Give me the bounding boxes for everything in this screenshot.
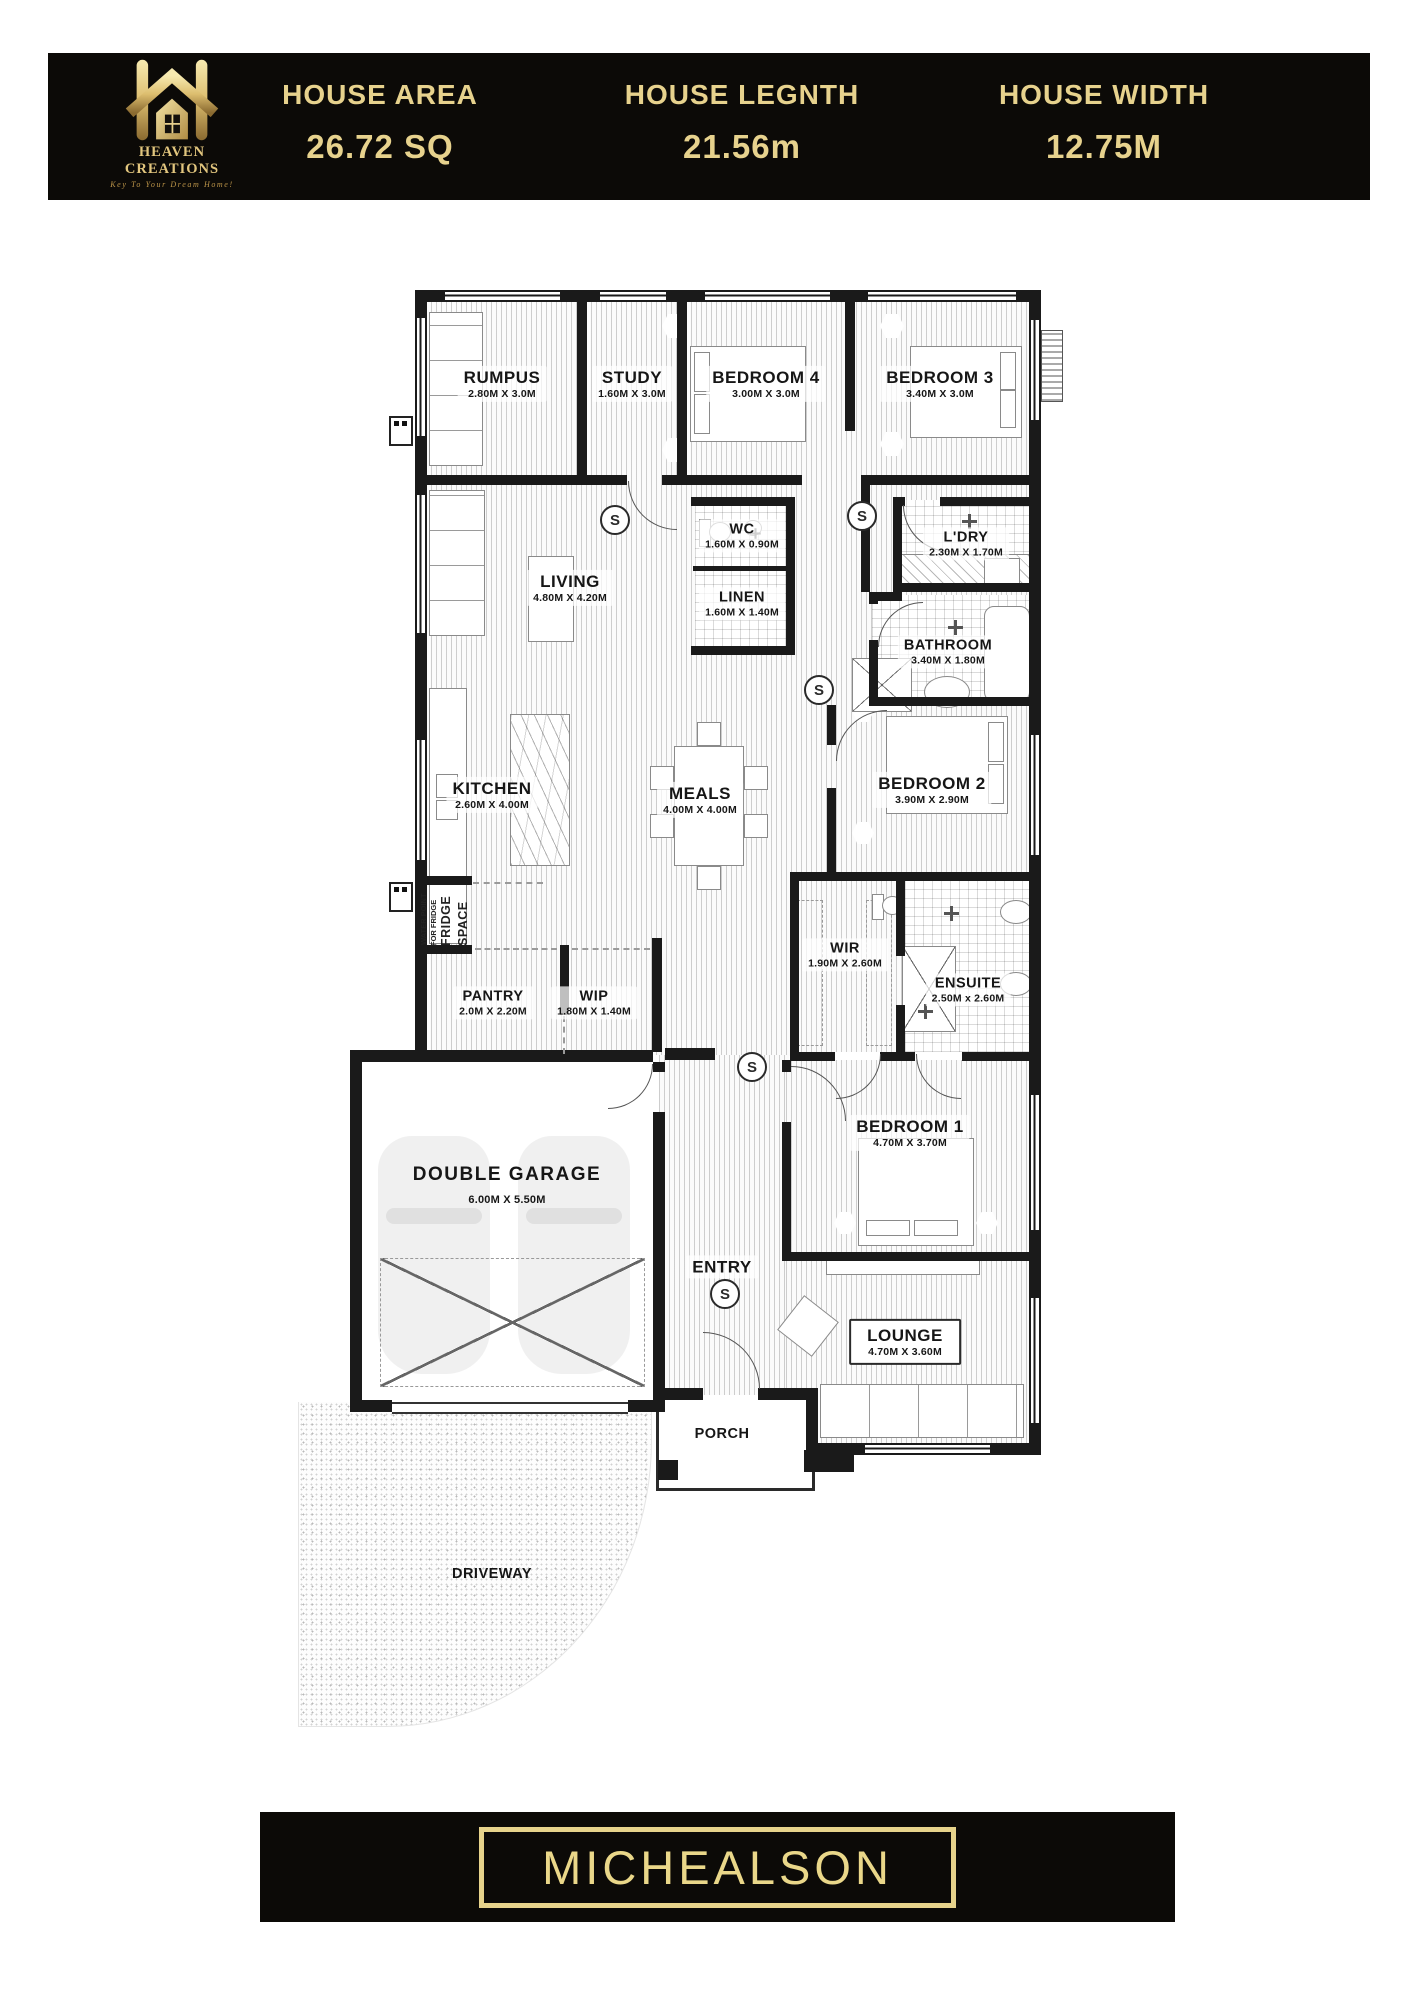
room-label-entry: ENTRY — [686, 1255, 758, 1278]
wall-segment — [790, 881, 799, 1052]
window — [415, 318, 427, 436]
window — [1029, 735, 1041, 855]
ac-unit — [1041, 330, 1063, 402]
wall-segment — [869, 592, 902, 601]
room-label-wip: WIP1.80M X 1.40M — [551, 986, 637, 1019]
opening-dashed — [475, 948, 557, 950]
room-label-ensuite: ENSUITE2.50M x 2.60M — [926, 973, 1011, 1006]
wall-segment — [790, 1052, 835, 1061]
room-label-living: LIVING4.80M X 4.20M — [527, 570, 613, 606]
fridge-space-label: FRIDGE — [439, 876, 453, 946]
wall-segment — [662, 475, 802, 485]
window — [600, 290, 666, 302]
wall-segment — [653, 1388, 703, 1400]
door-arc — [608, 1064, 653, 1109]
opening-dashed — [563, 1016, 565, 1054]
header-bar: HEAVEN CREATIONS Key To Your Dream Home!… — [48, 53, 1370, 200]
porch-post — [658, 1460, 678, 1480]
heaven-creations-house-icon — [113, 58, 231, 142]
wall-segment — [628, 1400, 665, 1412]
brand-tagline: Key To Your Dream Home! — [92, 180, 252, 189]
wall-segment — [693, 566, 791, 571]
wall-segment — [962, 1052, 1041, 1061]
wall-segment — [862, 475, 1041, 485]
room-label-bedroom3: BEDROOM 33.40M X 3.0M — [880, 366, 999, 402]
wall-segment — [940, 497, 1041, 506]
smoke-detector-symbol: S — [600, 505, 630, 535]
wall-segment — [827, 788, 836, 872]
wall-segment — [861, 475, 870, 592]
window — [868, 290, 1016, 302]
design-name-plate: MICHEALSON — [479, 1827, 956, 1908]
smoke-detector-symbol: S — [847, 501, 877, 531]
water-point-note: FOR FRIDGE — [429, 884, 438, 946]
garage-panel-door — [392, 1402, 628, 1414]
car-windshield — [386, 1208, 482, 1224]
water-point-note: WATER POINT — [419, 881, 428, 945]
wall-segment — [869, 697, 1041, 706]
stat-house-width: HOUSE WIDTH 12.75M — [944, 79, 1264, 166]
room-label-bathroom: BATHROOM3.40M X 1.80M — [898, 635, 998, 668]
bed3-pillow — [1000, 390, 1016, 428]
wall-segment — [896, 1005, 905, 1052]
wall-segment — [653, 1062, 665, 1072]
wall-segment — [350, 1062, 362, 1412]
room-label-ldry: L'DRY2.30M X 1.70M — [923, 527, 1009, 560]
wall-segment — [652, 938, 662, 1052]
porch-area — [656, 1400, 815, 1491]
wall-segment — [896, 881, 905, 956]
footer-bar: MICHEALSON — [260, 1812, 1175, 1922]
floor-meals-south — [661, 878, 790, 1056]
wall-segment — [782, 1122, 791, 1252]
room-label-rumpus: RUMPUS2.80M X 3.0M — [458, 366, 547, 402]
wall-segment — [893, 583, 1041, 592]
window — [1029, 1298, 1041, 1423]
wall-segment — [577, 301, 587, 475]
room-label-meals: MEALS4.00M X 4.00M — [657, 782, 743, 818]
smoke-detector-symbol: S — [710, 1279, 740, 1309]
window — [1029, 320, 1041, 420]
room-label-porch: PORCH — [689, 1424, 756, 1444]
laundry-trough — [984, 558, 1020, 586]
window — [445, 290, 560, 302]
meals-chair — [744, 766, 768, 790]
room-label-bedroom2: BEDROOM 23.90M X 2.90M — [872, 772, 991, 808]
stat-house-area: HOUSE AREA 26.72 SQ — [220, 79, 540, 166]
wall-segment — [691, 646, 795, 655]
room-label-garage: DOUBLE GARAGE6.00M X 5.50M — [407, 1162, 607, 1209]
fridge-space-label: SPACE — [456, 876, 470, 946]
window — [865, 1443, 990, 1455]
meals-chair — [697, 722, 721, 746]
smoke-detector-symbol: S — [804, 675, 834, 705]
wall-segment — [427, 475, 627, 485]
wir-shelving — [866, 900, 892, 1046]
wir-shelving — [797, 900, 823, 1046]
bed1-pillow — [914, 1220, 958, 1236]
room-label-lounge: LOUNGE4.70M X 3.60M — [849, 1319, 961, 1365]
bed1-pillow — [866, 1220, 910, 1236]
room-label-wir: WIR1.90M X 2.60M — [802, 938, 888, 971]
exhaust-fan-icon — [944, 906, 959, 921]
meter-box — [389, 882, 413, 912]
stat-house-length: HOUSE LEGNTH 21.56m — [582, 79, 902, 166]
bed2-pillow — [988, 722, 1004, 762]
bed3-pillow — [1000, 352, 1016, 390]
wall-segment — [845, 301, 855, 431]
wall-segment — [677, 301, 687, 475]
smoke-detector-symbol: S — [737, 1052, 767, 1082]
garage-clearance-zone — [380, 1258, 645, 1387]
window — [415, 495, 427, 633]
room-label-wc: WC1.60M X 0.90M — [699, 519, 785, 552]
living-sofa — [429, 490, 485, 636]
wall-segment — [427, 945, 472, 954]
meals-chair — [744, 814, 768, 838]
wall-segment — [782, 1252, 1041, 1261]
room-label-study: STUDY1.60M X 3.0M — [592, 366, 672, 402]
room-label-driveway: DRIVEWAY — [446, 1564, 538, 1584]
wall-segment — [691, 497, 795, 506]
room-label-kitchen: KITCHEN2.60M X 4.00M — [446, 777, 537, 813]
room-label-bedroom1: BEDROOM 14.70M X 3.70M — [850, 1115, 969, 1151]
opening-dashed — [473, 882, 543, 884]
wall-segment — [653, 1112, 665, 1400]
room-label-pantry: PANTRY2.0M X 2.20M — [453, 986, 533, 1019]
room-label-bedroom4: BEDROOM 43.00M X 3.0M — [706, 366, 825, 402]
porch-pier — [804, 1450, 854, 1472]
lounge-sofa — [820, 1384, 1024, 1438]
opening-dashed — [572, 948, 650, 950]
wall-segment — [827, 705, 836, 745]
ensuite-basin — [1000, 900, 1032, 924]
room-label-linen: LINEN1.60M X 1.40M — [699, 587, 785, 620]
window — [705, 290, 830, 302]
car-windshield — [526, 1208, 622, 1224]
exhaust-fan-icon — [948, 620, 963, 635]
window — [1029, 1095, 1041, 1230]
wall-segment — [806, 1395, 818, 1455]
lounge-cabinet — [826, 1260, 980, 1275]
wall-segment — [350, 1400, 392, 1412]
wall-segment — [350, 1050, 427, 1062]
meter-box — [389, 416, 413, 446]
window — [415, 740, 427, 860]
wall-segment — [880, 1052, 915, 1061]
wall-segment — [790, 872, 1041, 881]
wall-segment — [782, 1060, 791, 1072]
wall-segment — [427, 1050, 653, 1062]
wall-segment — [665, 1048, 715, 1060]
floorplan-sheet: HEAVEN CREATIONS Key To Your Dream Home!… — [0, 0, 1414, 2000]
wall-segment — [786, 497, 795, 655]
meals-chair — [697, 866, 721, 890]
design-name: MICHEALSON — [542, 1840, 893, 1895]
wall-segment — [893, 497, 902, 592]
